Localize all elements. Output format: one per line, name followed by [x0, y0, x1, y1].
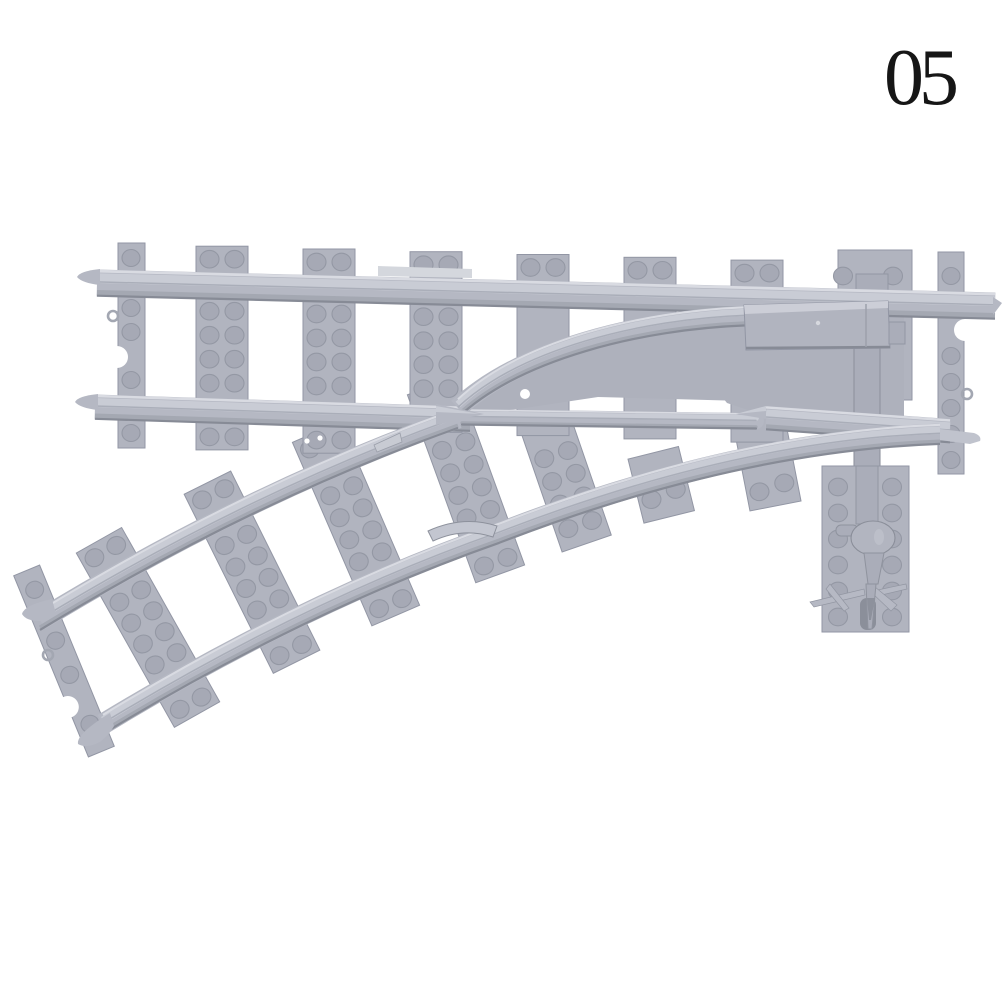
svg-text:05: 05 [884, 34, 956, 122]
